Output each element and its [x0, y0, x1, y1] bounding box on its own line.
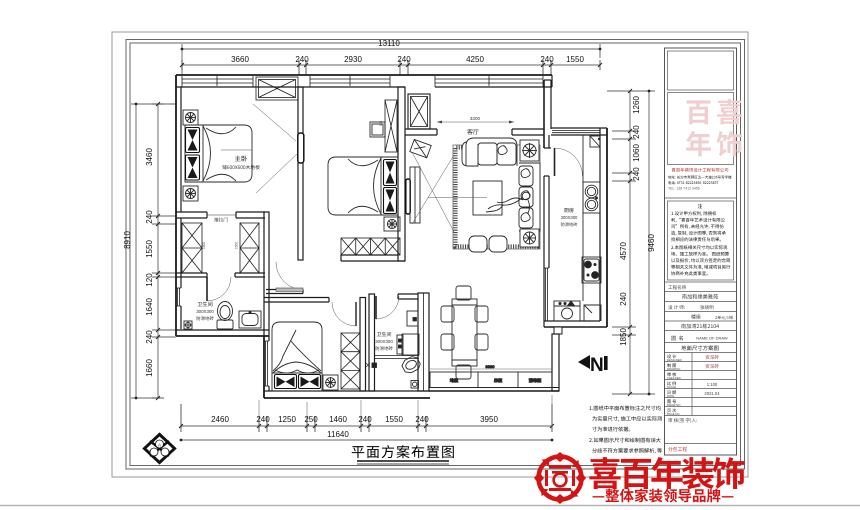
- svg-text:8910: 8910: [123, 231, 132, 249]
- svg-text:4570: 4570: [619, 242, 628, 260]
- svg-text:1500: 1500: [202, 242, 206, 249]
- svg-text:240: 240: [540, 55, 554, 64]
- svg-text:1550: 1550: [145, 240, 154, 258]
- svg-text:TEL: 138 7412 3456: TEL: 138 7412 3456: [668, 187, 700, 191]
- svg-text:1640: 1640: [145, 298, 154, 316]
- svg-text:11640: 11640: [327, 430, 349, 439]
- svg-text:300X300: 300X300: [196, 309, 214, 314]
- svg-text:300X300: 300X300: [375, 339, 393, 344]
- svg-text:A: A: [158, 443, 161, 448]
- svg-text:N: N: [590, 355, 603, 376]
- svg-text:2021.04: 2021.04: [704, 391, 720, 396]
- svg-text:1850: 1850: [619, 328, 628, 346]
- svg-text:240: 240: [358, 415, 372, 424]
- svg-text:300X300: 300X300: [561, 215, 578, 220]
- svg-text:240: 240: [415, 415, 429, 424]
- svg-text:2460: 2460: [211, 415, 229, 424]
- svg-text:3300: 3300: [470, 116, 481, 121]
- svg-text:1250: 1250: [278, 415, 296, 424]
- svg-text:DATE: DATE: [667, 394, 674, 398]
- svg-text:SCALE: SCALE: [667, 385, 676, 389]
- svg-text:1460: 1460: [329, 415, 347, 424]
- svg-text:250: 250: [304, 415, 318, 424]
- svg-text:DRAWING: DRAWING: [667, 367, 680, 371]
- svg-text:1:100: 1:100: [707, 382, 718, 387]
- svg-text:2930: 2930: [344, 55, 362, 64]
- svg-text:3660: 3660: [231, 55, 249, 64]
- svg-text:DRAW NO: DRAW NO: [667, 403, 681, 407]
- svg-text:1660: 1660: [145, 359, 154, 377]
- svg-text:240: 240: [145, 330, 154, 344]
- svg-text:PAGE NO: PAGE NO: [667, 412, 680, 416]
- svg-text:DESIGNER: DESIGNER: [667, 358, 682, 362]
- svg-text:4250: 4250: [466, 55, 484, 64]
- svg-text:3460: 3460: [145, 148, 154, 166]
- svg-text:1550: 1550: [566, 55, 584, 64]
- svg-text:240: 240: [619, 292, 628, 306]
- svg-text:1260: 1260: [632, 96, 641, 114]
- svg-text:240: 240: [632, 125, 641, 139]
- svg-text:1060: 1060: [632, 144, 641, 162]
- svg-text:3950: 3950: [480, 415, 498, 424]
- svg-text:13110: 13110: [378, 39, 400, 48]
- svg-text:240: 240: [256, 415, 270, 424]
- svg-text:CHECKED: CHECKED: [667, 376, 681, 380]
- svg-text:9460: 9460: [647, 234, 656, 252]
- svg-text:240: 240: [145, 210, 154, 224]
- svg-text:600: 600: [379, 120, 383, 126]
- svg-text:3380: 3380: [486, 364, 496, 369]
- svg-text:NAME OF DRAW: NAME OF DRAW: [696, 336, 728, 341]
- svg-text:240: 240: [295, 55, 309, 64]
- svg-text:1500: 1500: [235, 242, 239, 249]
- svg-text:240: 240: [397, 55, 411, 64]
- svg-text:240: 240: [632, 167, 641, 181]
- svg-text:120: 120: [145, 273, 154, 287]
- svg-text:1550: 1550: [385, 415, 403, 424]
